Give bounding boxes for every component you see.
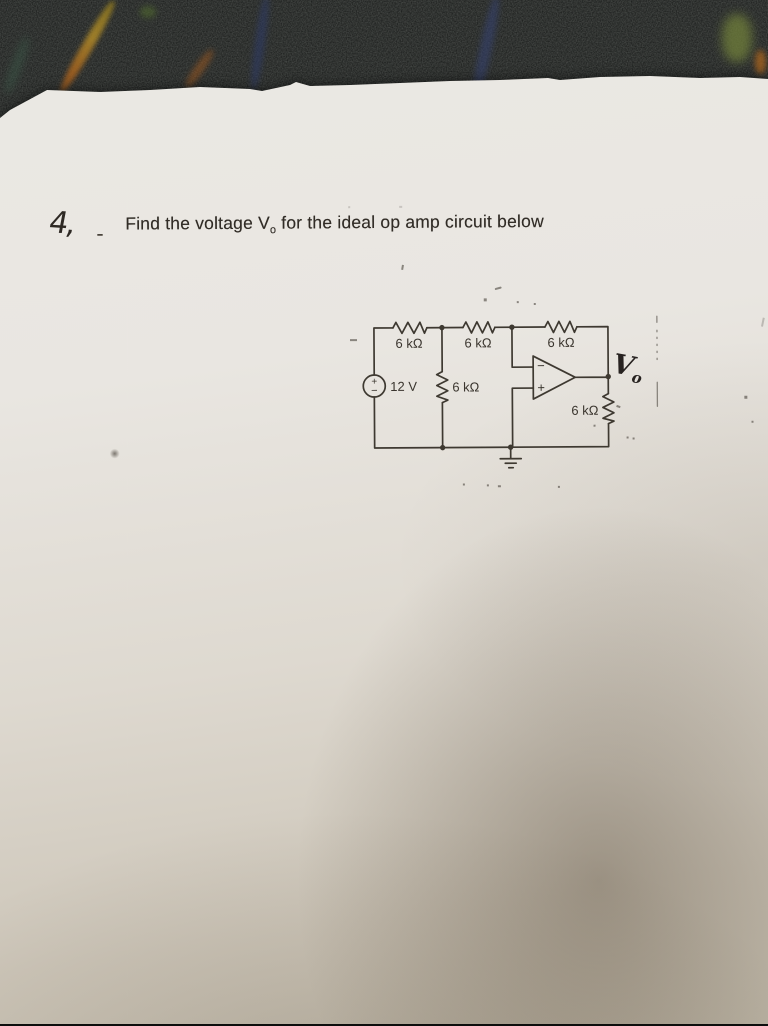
label-source: 12 V bbox=[390, 379, 417, 394]
page-content: 4, - Find the voltage Vo for the ideal o… bbox=[0, 0, 768, 1026]
node-dot bbox=[439, 325, 444, 330]
title-text-rest: for the ideal op amp circuit below bbox=[276, 211, 544, 233]
paper-speck bbox=[594, 425, 596, 427]
label-r1: 6 kΩ bbox=[395, 336, 422, 351]
opamp-circuit-diagram: 6 kΩ 6 kΩ 6 kΩ 6 kΩ 6 kΩ 12 V + − − + Vo bbox=[340, 293, 661, 495]
opamp-inverting-sign: − bbox=[537, 358, 545, 373]
paper-speck bbox=[627, 436, 629, 438]
resistor-shunt bbox=[437, 372, 448, 403]
handwritten-vo-label: Vo bbox=[610, 349, 647, 388]
ground-symbol bbox=[500, 447, 521, 468]
pencil-smudge bbox=[110, 449, 120, 459]
handwritten-dash: - bbox=[96, 221, 103, 247]
node-dot bbox=[509, 324, 514, 329]
label-r5: 6 kΩ bbox=[571, 403, 598, 418]
node-dot bbox=[508, 444, 513, 449]
paper-speck bbox=[534, 303, 536, 305]
paper-speck bbox=[633, 437, 635, 439]
paper-speck bbox=[752, 421, 754, 423]
label-r2: 6 kΩ bbox=[464, 335, 491, 350]
paper-speck bbox=[744, 396, 747, 399]
paper-wrap: 4, - Find the voltage Vo for the ideal o… bbox=[0, 0, 768, 1024]
paper-speck bbox=[487, 484, 489, 486]
paper-speck bbox=[399, 206, 402, 208]
source-minus-sign: − bbox=[371, 385, 378, 397]
label-r4: 6 kΩ bbox=[452, 379, 479, 394]
resistor-load bbox=[603, 394, 614, 424]
title-text: Find the voltage V bbox=[125, 213, 270, 234]
resistor-top-left bbox=[393, 322, 427, 333]
problem-title: Find the voltage Vo for the ideal op amp… bbox=[125, 210, 685, 237]
node-dot bbox=[440, 445, 445, 450]
paper-speck bbox=[498, 485, 501, 487]
paper-speck bbox=[761, 318, 765, 327]
paper-speck bbox=[350, 339, 357, 341]
opamp-noninverting-sign: + bbox=[537, 380, 545, 395]
paper-speck bbox=[484, 298, 487, 301]
paper-speck bbox=[401, 265, 404, 270]
paper-speck bbox=[463, 483, 465, 485]
fold-dash-dot-line bbox=[657, 316, 658, 406]
resistor-feedback bbox=[545, 321, 577, 332]
paper-speck bbox=[348, 206, 350, 208]
resistor-top-middle bbox=[463, 322, 495, 333]
label-r3: 6 kΩ bbox=[547, 335, 574, 350]
handwritten-problem-number: 4, bbox=[46, 205, 77, 241]
paper-sheet: 4, - Find the voltage Vo for the ideal o… bbox=[0, 0, 768, 1024]
paper-speck bbox=[517, 301, 519, 303]
paper-speck bbox=[495, 286, 502, 290]
paper-speck bbox=[558, 486, 560, 488]
